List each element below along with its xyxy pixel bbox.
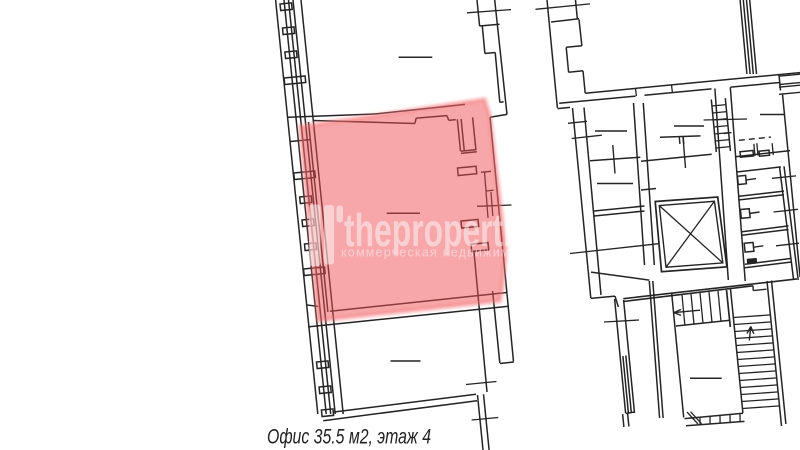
svg-text:Офис 35.5 м2, этаж 4: Офис 35.5 м2, этаж 4 xyxy=(267,425,431,449)
svg-text:коммерческая недвижимость: коммерческая недвижимость xyxy=(341,246,541,260)
